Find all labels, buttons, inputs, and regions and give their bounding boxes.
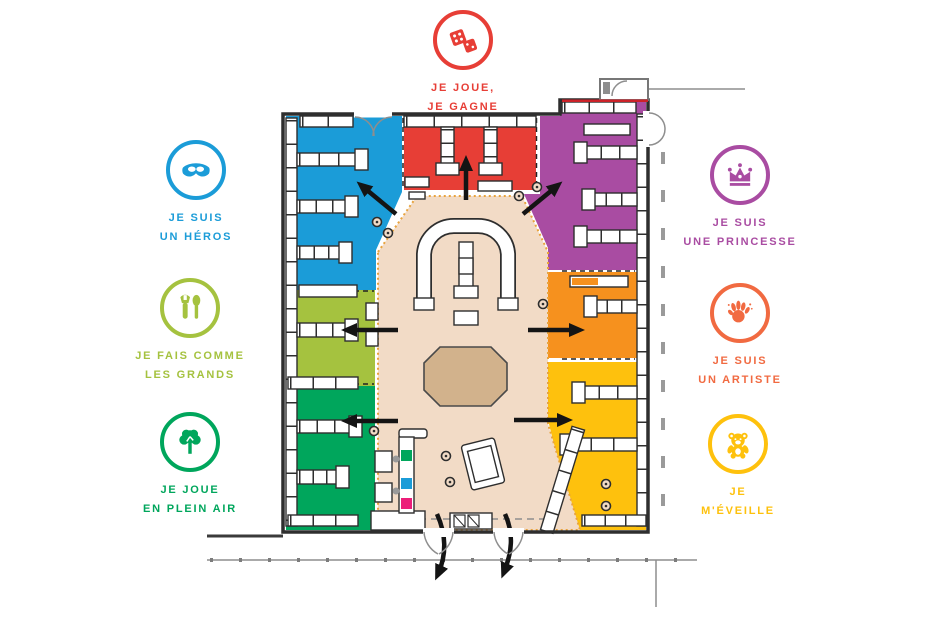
hero-mask-icon <box>166 140 226 200</box>
wood-platform <box>424 347 507 406</box>
legend-je-fais-comme-les-grands: JE FAIS COMME LES GRANDS <box>115 278 265 386</box>
teddy-bear-icon <box>708 414 768 474</box>
legend-label: JE SUIS UNE PRINCESSE <box>665 214 815 253</box>
legend-label: JE JOUE, JE GAGNE <box>388 79 538 118</box>
legend-je-suis-une-princesse: JE SUIS UNE PRINCESSE <box>665 145 815 253</box>
legend-label: JE M'ÉVEILLE <box>663 483 813 522</box>
handprint-icon <box>710 283 770 343</box>
store-floor-plan-page: JE JOUE, JE GAGNE JE SUIS UN HÉROS <box>0 0 930 620</box>
handprint-icon-glyph <box>725 298 755 328</box>
legend-label: JE SUIS UN HÉROS <box>121 209 271 248</box>
zone-plein-air-green <box>286 386 375 530</box>
crown-icon <box>710 145 770 205</box>
dice-icon <box>433 10 493 70</box>
display-table <box>454 311 478 325</box>
tree-icon <box>160 412 220 472</box>
hero-mask-icon-glyph <box>181 155 211 185</box>
legend-je-suis-un-artiste: JE SUIS UN ARTISTE <box>665 283 815 391</box>
tree-icon-glyph <box>175 427 205 457</box>
vestibule <box>562 79 648 101</box>
legend-je-suis-un-heros: JE SUIS UN HÉROS <box>121 140 271 248</box>
crown-icon-glyph <box>725 160 755 190</box>
teddy-bear-icon-glyph <box>723 429 753 459</box>
legend-label: JE SUIS UN ARTISTE <box>665 352 815 391</box>
legend-label: JE JOUE EN PLEIN AIR <box>115 481 265 520</box>
legend-je-joue-je-gagne: JE JOUE, JE GAGNE <box>388 10 538 118</box>
legend-label: JE FAIS COMME LES GRANDS <box>115 347 265 386</box>
tools-icon <box>160 278 220 338</box>
zone-grands-lime <box>286 290 375 386</box>
dice-icon-glyph <box>448 25 478 55</box>
legend-je-joue-en-plein-air: JE JOUE EN PLEIN AIR <box>115 412 265 520</box>
legend-je-m-eveille: JE M'ÉVEILLE <box>663 414 813 522</box>
tools-icon-glyph <box>175 293 205 323</box>
